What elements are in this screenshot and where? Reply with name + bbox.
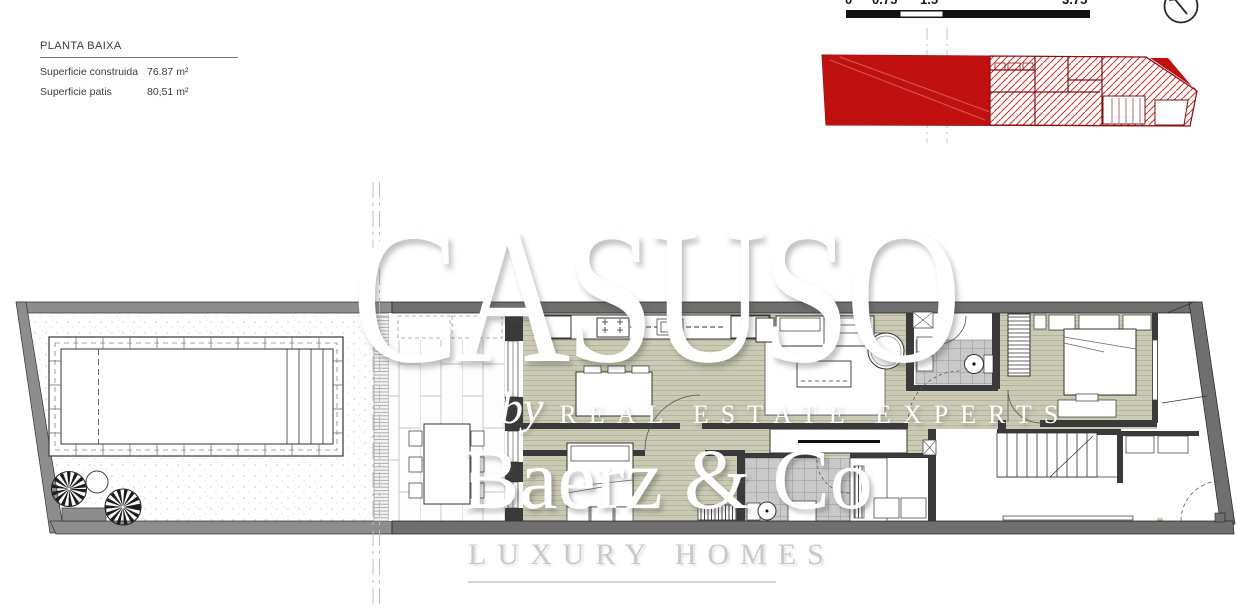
planter-circle [86, 471, 108, 493]
wardrobe [1008, 314, 1030, 376]
scale-label-2: 1.5 [920, 0, 938, 7]
sink-icon [657, 319, 683, 335]
stove-icon [597, 318, 629, 337]
watermark-rule [468, 581, 776, 583]
floorplan-page: 0 0.75 1.5 3.75 PLANTA BAIXA Superficie … [0, 0, 1237, 609]
patio-garden [16, 302, 392, 534]
area-label: Superficie patis [40, 86, 147, 98]
patio-fence [374, 316, 389, 521]
scale-label-0: 0 [845, 0, 852, 7]
coffee-table [797, 361, 851, 387]
scale-label-3: 3.75 [1062, 0, 1087, 7]
key-plan-highlight [822, 55, 990, 125]
area-row: Superficie patis 80,51 m² [40, 86, 250, 98]
vent-icon [913, 312, 933, 328]
title-rule [40, 57, 238, 58]
plan-title: PLANTA BAIXA [40, 40, 250, 52]
tv [798, 440, 880, 443]
area-value: 76.87 m² [147, 66, 207, 78]
deck-terrace [389, 313, 507, 521]
area-value: 80,51 m² [147, 86, 207, 98]
side-table [868, 333, 904, 369]
scale-segment [944, 10, 1090, 18]
scale-segment [846, 10, 899, 18]
toilet-icon [747, 502, 776, 520]
key-plan [822, 55, 1197, 126]
bed-master [1064, 329, 1136, 395]
towel-radiator [854, 466, 864, 518]
scale-segment [899, 10, 944, 18]
title-block: PLANTA BAIXA Superficie construida 76.87… [40, 40, 250, 98]
area-label: Superficie construida [40, 66, 147, 78]
north-arrow-icon [1165, 0, 1198, 23]
vent-icon [923, 440, 936, 455]
toilet-icon [965, 355, 994, 374]
radiator [698, 505, 737, 520]
area-row: Superficie construida 76.87 m² [40, 66, 250, 78]
kitchen-island [576, 366, 652, 416]
dining-table [409, 424, 484, 504]
bed-2 [567, 443, 633, 507]
pool [49, 337, 343, 456]
sofa [756, 316, 874, 346]
scale-label-1: 0.75 [872, 0, 897, 7]
